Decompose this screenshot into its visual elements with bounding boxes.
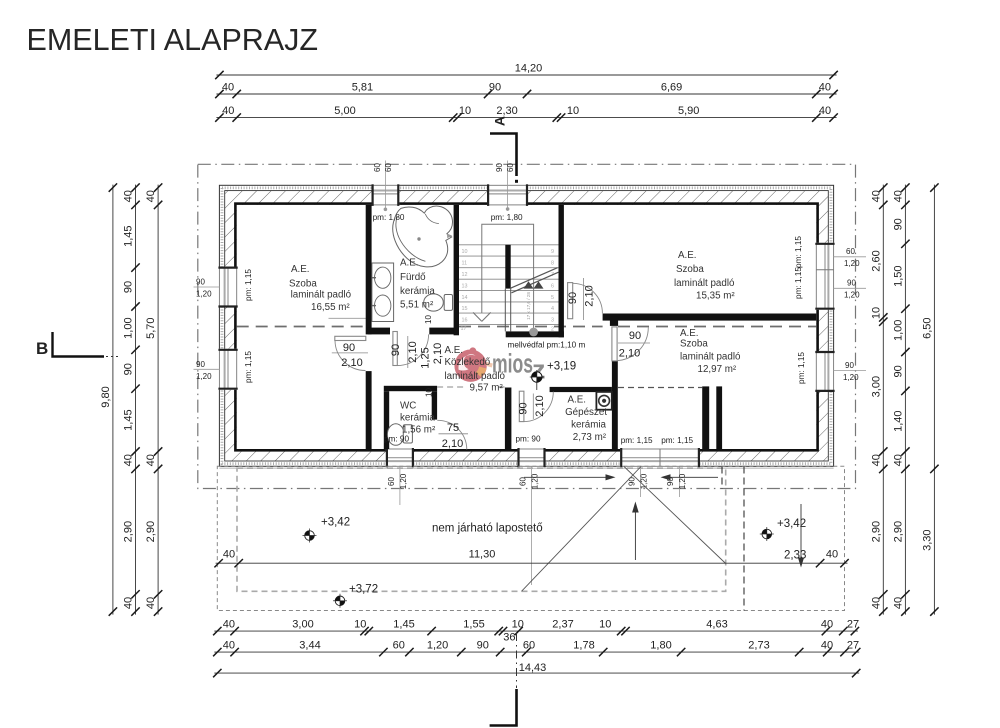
- svg-text:5,90: 5,90: [678, 105, 699, 117]
- svg-text:pm: 90: pm: 90: [516, 435, 541, 444]
- svg-text:15,35 m²: 15,35 m²: [696, 291, 735, 302]
- svg-text:40: 40: [892, 597, 904, 609]
- svg-text:4,63: 4,63: [706, 619, 727, 631]
- svg-text:Közlekedő: Közlekedő: [445, 357, 491, 368]
- svg-text:Szoba: Szoba: [289, 279, 317, 290]
- svg-text:A.E.: A.E.: [400, 258, 419, 269]
- svg-text:A: A: [492, 116, 508, 126]
- svg-text:2,90: 2,90: [870, 521, 882, 542]
- svg-text:40: 40: [223, 619, 235, 631]
- svg-text:2,10: 2,10: [534, 395, 546, 416]
- svg-text:2,10: 2,10: [407, 341, 419, 362]
- svg-text:+3,19: +3,19: [547, 361, 576, 373]
- svg-text:75: 75: [447, 422, 459, 434]
- svg-text:+3,42: +3,42: [321, 517, 350, 529]
- svg-text:40: 40: [870, 454, 882, 466]
- svg-text:90: 90: [390, 344, 402, 356]
- svg-text:pm: 1,15: pm: 1,15: [797, 352, 806, 384]
- svg-text:40: 40: [821, 640, 833, 652]
- svg-text:A.E.: A.E.: [567, 395, 586, 406]
- svg-text:laminált padló: laminált padló: [445, 371, 506, 382]
- svg-text:pm: 1,15: pm: 1,15: [661, 436, 693, 445]
- svg-text:40: 40: [123, 190, 135, 202]
- svg-text:60: 60: [384, 163, 393, 172]
- svg-text:90: 90: [847, 279, 856, 288]
- svg-text:1,45: 1,45: [393, 619, 414, 631]
- svg-text:+3,42: +3,42: [777, 518, 806, 530]
- svg-text:4: 4: [551, 306, 554, 312]
- svg-text:17: 17: [461, 326, 467, 332]
- svg-text:1,20: 1,20: [678, 473, 687, 489]
- svg-text:1,20: 1,20: [844, 291, 860, 300]
- svg-text:90: 90: [892, 365, 904, 377]
- svg-text:1,40: 1,40: [892, 410, 904, 431]
- svg-text:kerámia: kerámia: [400, 286, 435, 297]
- svg-text:40: 40: [819, 105, 831, 117]
- svg-text:60: 60: [846, 247, 855, 256]
- svg-text:3,44: 3,44: [299, 640, 320, 652]
- svg-text:pm: 1,15: pm: 1,15: [794, 267, 803, 299]
- svg-text:40: 40: [145, 190, 157, 202]
- svg-text:10: 10: [567, 105, 579, 117]
- svg-text:15: 15: [462, 306, 468, 312]
- svg-text:11,30: 11,30: [469, 549, 496, 561]
- svg-text:10: 10: [459, 105, 471, 117]
- svg-text:90: 90: [196, 278, 205, 287]
- svg-text:10: 10: [462, 249, 468, 255]
- svg-text:5: 5: [551, 295, 554, 301]
- svg-text:3,00: 3,00: [870, 376, 882, 397]
- svg-text:90: 90: [495, 163, 504, 172]
- svg-text:5,00: 5,00: [334, 105, 355, 117]
- svg-text:3,30: 3,30: [921, 529, 933, 550]
- svg-text:10: 10: [424, 315, 433, 324]
- svg-text:B: B: [36, 339, 48, 358]
- svg-text:90: 90: [567, 292, 579, 304]
- svg-text:WC: WC: [400, 401, 416, 412]
- svg-text:6: 6: [551, 284, 554, 290]
- svg-text:2,10: 2,10: [584, 285, 596, 306]
- svg-text:10: 10: [354, 619, 366, 631]
- svg-text:2,73 m²: 2,73 m²: [573, 432, 607, 443]
- svg-text:3: 3: [551, 318, 554, 324]
- svg-text:10: 10: [512, 619, 524, 631]
- svg-text:90: 90: [489, 82, 501, 94]
- svg-text:36: 36: [503, 632, 515, 644]
- svg-text:1,20: 1,20: [427, 640, 448, 652]
- svg-text:1,78: 1,78: [573, 640, 594, 652]
- svg-text:1,20: 1,20: [640, 473, 649, 489]
- svg-text:40: 40: [821, 619, 833, 631]
- svg-text:2,37: 2,37: [552, 619, 573, 631]
- svg-text:1,00: 1,00: [892, 320, 904, 341]
- svg-text:60: 60: [519, 477, 528, 486]
- svg-text:60: 60: [523, 640, 535, 652]
- svg-text:40: 40: [826, 549, 838, 561]
- svg-text:16: 16: [462, 318, 468, 324]
- svg-text:40: 40: [123, 597, 135, 609]
- svg-text:90: 90: [343, 342, 355, 354]
- svg-text:5,51 m²: 5,51 m²: [400, 300, 434, 311]
- svg-text:40: 40: [892, 454, 904, 466]
- svg-text:1,00: 1,00: [123, 317, 135, 338]
- svg-text:2,60: 2,60: [870, 250, 882, 271]
- svg-text:17 x 17,6 / 28: 17 x 17,6 / 28: [526, 292, 531, 320]
- svg-text:40: 40: [223, 640, 235, 652]
- svg-text:12: 12: [462, 272, 468, 278]
- svg-text:1,45: 1,45: [123, 225, 135, 246]
- svg-text:60: 60: [393, 640, 405, 652]
- svg-text:pm: 1,80: pm: 1,80: [491, 213, 523, 222]
- svg-text:1,80: 1,80: [650, 640, 671, 652]
- svg-text:40: 40: [223, 549, 235, 561]
- svg-text:A.E.: A.E.: [445, 345, 464, 356]
- svg-text:10: 10: [599, 619, 611, 631]
- svg-text:40: 40: [819, 82, 831, 94]
- svg-text:EMELETI ALAPRAJZ: EMELETI ALAPRAJZ: [27, 23, 319, 57]
- svg-text:1,20: 1,20: [399, 473, 408, 489]
- svg-text:60: 60: [387, 477, 396, 486]
- svg-text:40: 40: [222, 82, 234, 94]
- svg-text:kerámia: kerámia: [400, 413, 435, 424]
- svg-text:90: 90: [628, 477, 637, 486]
- svg-text:40: 40: [870, 190, 882, 202]
- svg-text:40: 40: [123, 454, 135, 466]
- svg-text:pm: 1,80: pm: 1,80: [373, 213, 405, 222]
- svg-text:9: 9: [551, 249, 554, 255]
- svg-text:2,10: 2,10: [341, 357, 362, 369]
- svg-text:14: 14: [462, 295, 468, 301]
- svg-text:1,45: 1,45: [123, 409, 135, 430]
- svg-text:12,97 m²: 12,97 m²: [698, 364, 737, 375]
- svg-text:6,50: 6,50: [921, 317, 933, 338]
- svg-text:10: 10: [425, 388, 434, 397]
- svg-text:60: 60: [506, 163, 515, 172]
- svg-text:8: 8: [551, 261, 554, 267]
- svg-text:Fürdő: Fürdő: [400, 272, 426, 283]
- svg-text:16,55 m²: 16,55 m²: [311, 302, 350, 313]
- svg-text:Gépészet: Gépészet: [565, 407, 607, 418]
- svg-text:laminált padló: laminált padló: [291, 290, 352, 301]
- svg-text:10: 10: [870, 307, 882, 319]
- svg-text:9,80: 9,80: [100, 386, 112, 407]
- svg-text:A.E.: A.E.: [680, 328, 699, 339]
- svg-text:1,50: 1,50: [892, 265, 904, 286]
- svg-text:2,90: 2,90: [123, 521, 135, 542]
- svg-text:90: 90: [518, 402, 530, 414]
- svg-text:Szoba: Szoba: [676, 264, 704, 275]
- svg-text:A.E.: A.E.: [678, 250, 697, 261]
- svg-text:kerámia: kerámia: [571, 420, 606, 431]
- svg-text:14,43: 14,43: [519, 662, 547, 674]
- svg-text:40: 40: [870, 597, 882, 609]
- svg-text:40: 40: [892, 190, 904, 202]
- svg-text:2,10: 2,10: [619, 348, 640, 360]
- svg-text:1,25: 1,25: [420, 347, 432, 368]
- svg-text:pm: 1,15: pm: 1,15: [244, 351, 253, 383]
- svg-text:90: 90: [123, 281, 135, 293]
- svg-text:2,10: 2,10: [432, 343, 444, 364]
- svg-text:90: 90: [629, 330, 641, 342]
- svg-text:40: 40: [145, 454, 157, 466]
- svg-text:Szoba: Szoba: [680, 339, 708, 350]
- svg-text:90: 90: [477, 640, 489, 652]
- svg-text:pm: 90: pm: 90: [384, 435, 409, 444]
- svg-text:40: 40: [145, 597, 157, 609]
- svg-text:1,20: 1,20: [196, 372, 212, 381]
- svg-text:27: 27: [847, 619, 859, 631]
- svg-text:1,20: 1,20: [843, 373, 859, 382]
- svg-text:2: 2: [551, 327, 554, 333]
- svg-text:laminált padló: laminált padló: [680, 352, 741, 363]
- svg-text:40: 40: [222, 105, 234, 117]
- svg-text:6,69: 6,69: [661, 82, 682, 94]
- svg-text:A.E.: A.E.: [291, 264, 310, 275]
- svg-text:2,10: 2,10: [442, 438, 463, 450]
- svg-text:2,90: 2,90: [892, 521, 904, 542]
- svg-text:90: 90: [845, 361, 854, 370]
- svg-text:2,90: 2,90: [145, 521, 157, 542]
- svg-text:pm: 1,15: pm: 1,15: [621, 436, 653, 445]
- svg-text:11: 11: [462, 261, 468, 267]
- svg-text:5,70: 5,70: [145, 317, 157, 338]
- svg-text:1,20: 1,20: [196, 290, 212, 299]
- svg-text:1,20: 1,20: [844, 259, 860, 268]
- svg-text:60: 60: [373, 163, 382, 172]
- svg-text:1,55: 1,55: [463, 619, 484, 631]
- svg-text:13: 13: [462, 284, 468, 290]
- svg-text:pm: 1,15: pm: 1,15: [244, 269, 253, 301]
- svg-text:2,33: 2,33: [784, 550, 806, 562]
- svg-text:+3,72: +3,72: [349, 584, 378, 596]
- svg-text:laminált padló: laminált padló: [674, 278, 735, 289]
- svg-text:9,57 m²: 9,57 m²: [470, 382, 504, 393]
- svg-text:90: 90: [196, 360, 205, 369]
- svg-text:3,00: 3,00: [292, 619, 313, 631]
- svg-text:14,20: 14,20: [515, 63, 543, 75]
- svg-text:5,81: 5,81: [352, 82, 373, 94]
- svg-text:90: 90: [123, 363, 135, 375]
- svg-text:2,73: 2,73: [748, 640, 769, 652]
- svg-text:2,30: 2,30: [496, 105, 517, 117]
- svg-text:27: 27: [847, 640, 859, 652]
- svg-text:nem járható lapostető: nem járható lapostető: [432, 523, 543, 535]
- svg-text:pm: 1,15: pm: 1,15: [794, 236, 803, 268]
- svg-text:1,20: 1,20: [531, 473, 540, 489]
- svg-text:90: 90: [892, 218, 904, 230]
